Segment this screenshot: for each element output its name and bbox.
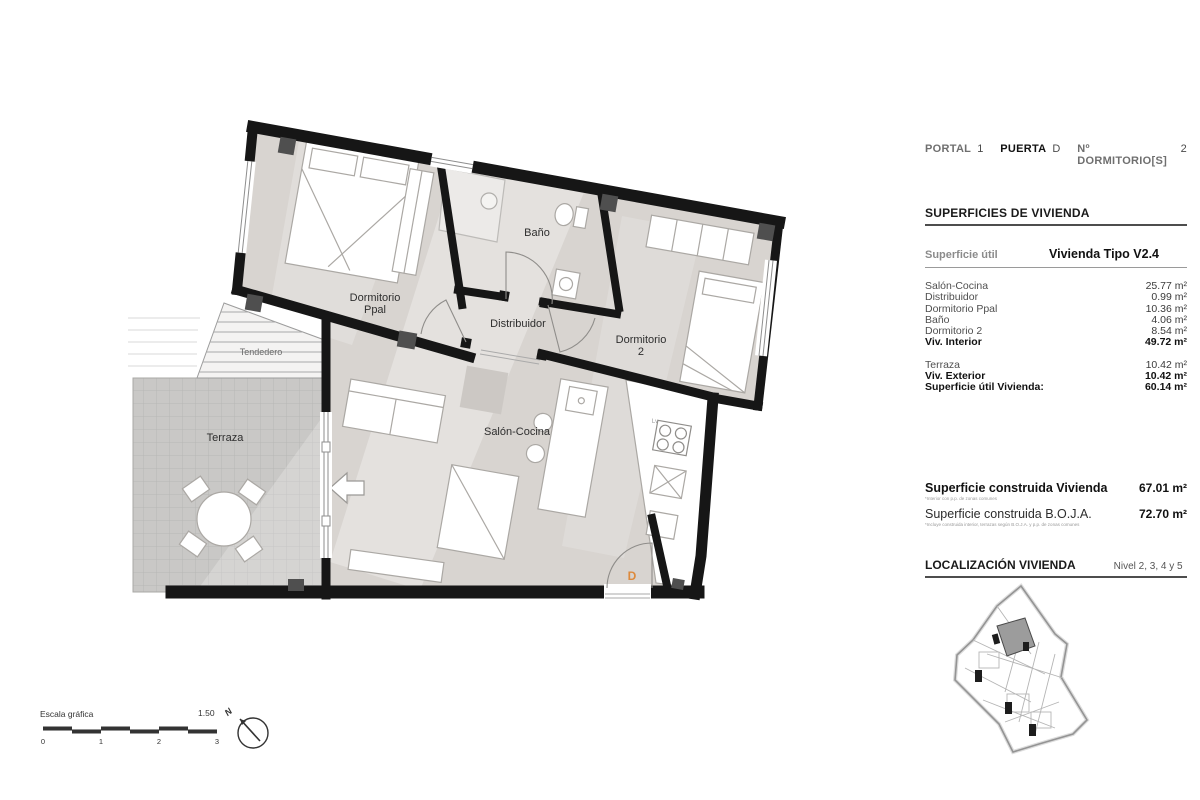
scale-tick: 0 — [41, 737, 45, 746]
puerta-value: D — [1052, 143, 1060, 155]
scale-tick: 3 — [215, 737, 219, 746]
localizacion-block: LOCALIZACIÓN VIVIENDA Nivel 2, 3, 4 y 5 — [925, 558, 1187, 772]
room-label-tendedero: Tendedero — [240, 346, 283, 358]
scale-tick: 2 — [157, 737, 161, 746]
puerta-label: PUERTA — [1000, 143, 1046, 155]
dormitorios-value: 2 — [1181, 143, 1187, 155]
data-panel: PORTAL 1 PUERTA D Nº DORMITORIO[S] 2 SUP… — [925, 143, 1187, 394]
superficies-title: SUPERFICIES DE VIVIENDA — [925, 206, 1187, 226]
room-label-salon-cocina: Salón-Cocina — [484, 426, 550, 438]
portal-value: 1 — [977, 143, 983, 155]
terraza-area — [133, 378, 326, 592]
construida-boja-note: *Incluye construida interior, terrazas s… — [925, 522, 1187, 527]
dishwasher-label: Lv — [652, 419, 658, 425]
localizacion-title: LOCALIZACIÓN VIVIENDA — [925, 558, 1076, 572]
table-row-total: Viv. Interior49.72 m² — [925, 337, 1187, 348]
dormitorios-label: Nº DORMITORIO[S] — [1077, 143, 1174, 167]
floorplan-sheet: { "header": { "portal_label": "PORTAL", … — [0, 0, 1200, 800]
room-label-distribuidor: Distribuidor — [490, 318, 546, 330]
construida-block: Superficie construida Vivienda 67.01 m² … — [925, 481, 1187, 533]
superficie-util-row: Superficie útil Vivienda Tipo V2.4 — [925, 247, 1187, 268]
scale-tick: 1 — [99, 737, 103, 746]
site-locator-map — [935, 582, 1165, 767]
construida-vivienda-row: Superficie construida Vivienda 67.01 m² — [925, 481, 1187, 495]
vivienda-tipo: Vivienda Tipo V2.4 — [1049, 247, 1159, 261]
room-label-dormitorio-2: Dormitorio2 — [616, 334, 667, 358]
entrance-door-letter: D — [628, 569, 637, 583]
table-row: Distribuidor0.99 m² — [925, 292, 1187, 303]
room-label-terraza: Terraza — [207, 432, 244, 444]
superficie-util-label: Superficie útil — [925, 249, 998, 261]
superficies-table: Salón-Cocina25.77 m² Distribuidor0.99 m²… — [925, 281, 1187, 394]
construida-vivienda-note: *Interior con p.p. de zonas comunes — [925, 496, 1187, 501]
unit-header: PORTAL 1 PUERTA D Nº DORMITORIO[S] 2 — [925, 143, 1187, 167]
construida-boja-row: Superficie construida B.O.J.A. 72.70 m² — [925, 507, 1187, 521]
localizacion-nivel: Nivel 2, 3, 4 y 5 — [1114, 561, 1183, 572]
table-row-total: Superficie útil Vivienda:60.14 m² — [925, 382, 1187, 393]
room-label-bano: Baño — [524, 227, 550, 239]
room-label-dormitorio-ppal: DormitorioPpal — [350, 292, 401, 316]
table-row: Dormitorio Ppal10.36 m² — [925, 304, 1187, 315]
portal-label: PORTAL — [925, 143, 971, 155]
